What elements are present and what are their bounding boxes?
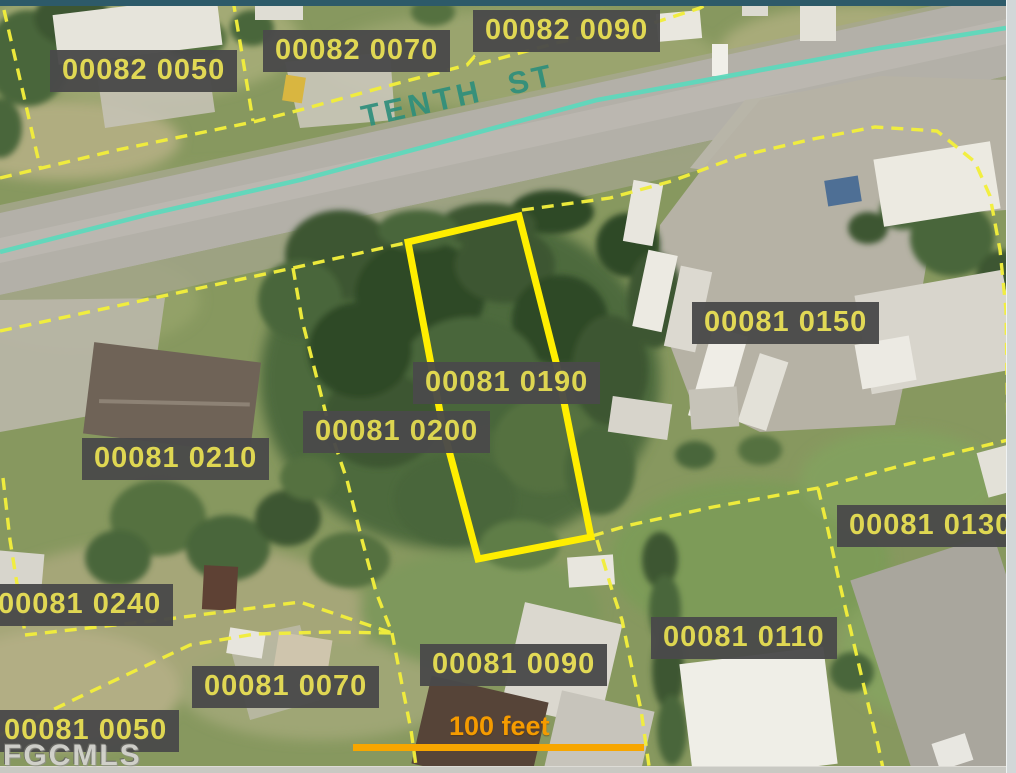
watermark-fgcmls: FGCMLS — [3, 739, 142, 773]
parcel-label: 00082 0050 — [50, 50, 237, 92]
parcel-label: 00081 0200 — [303, 411, 490, 453]
parcel-label: 00081 0110 — [651, 617, 837, 659]
parcel-label: 00081 0240 — [0, 584, 173, 626]
parcel-label: 00081 0130 — [837, 505, 1016, 547]
parcel-label: 00082 0090 — [473, 10, 660, 52]
map-canvas[interactable]: TENTH ST 00082 005000082 007000082 00900… — [0, 0, 1016, 773]
parcel-label: 00081 0090 — [420, 644, 607, 686]
parcel-label: 00081 0150 — [692, 302, 879, 344]
parcel-label: 00081 0070 — [192, 666, 379, 708]
right-scrollbar-track[interactable] — [1006, 0, 1016, 773]
window-top-edge — [0, 0, 1016, 6]
parcel-label: 00081 0210 — [82, 438, 269, 480]
scale-bar-label: 100 feet — [449, 711, 550, 742]
scale-bar — [353, 744, 644, 751]
window-bottom-edge — [0, 766, 1016, 773]
parcel-label-selected: 00081 0190 — [413, 362, 600, 404]
parcel-label: 00082 0070 — [263, 30, 450, 72]
gis-parcel-map-window: TENTH ST 00082 005000082 007000082 00900… — [0, 0, 1016, 773]
